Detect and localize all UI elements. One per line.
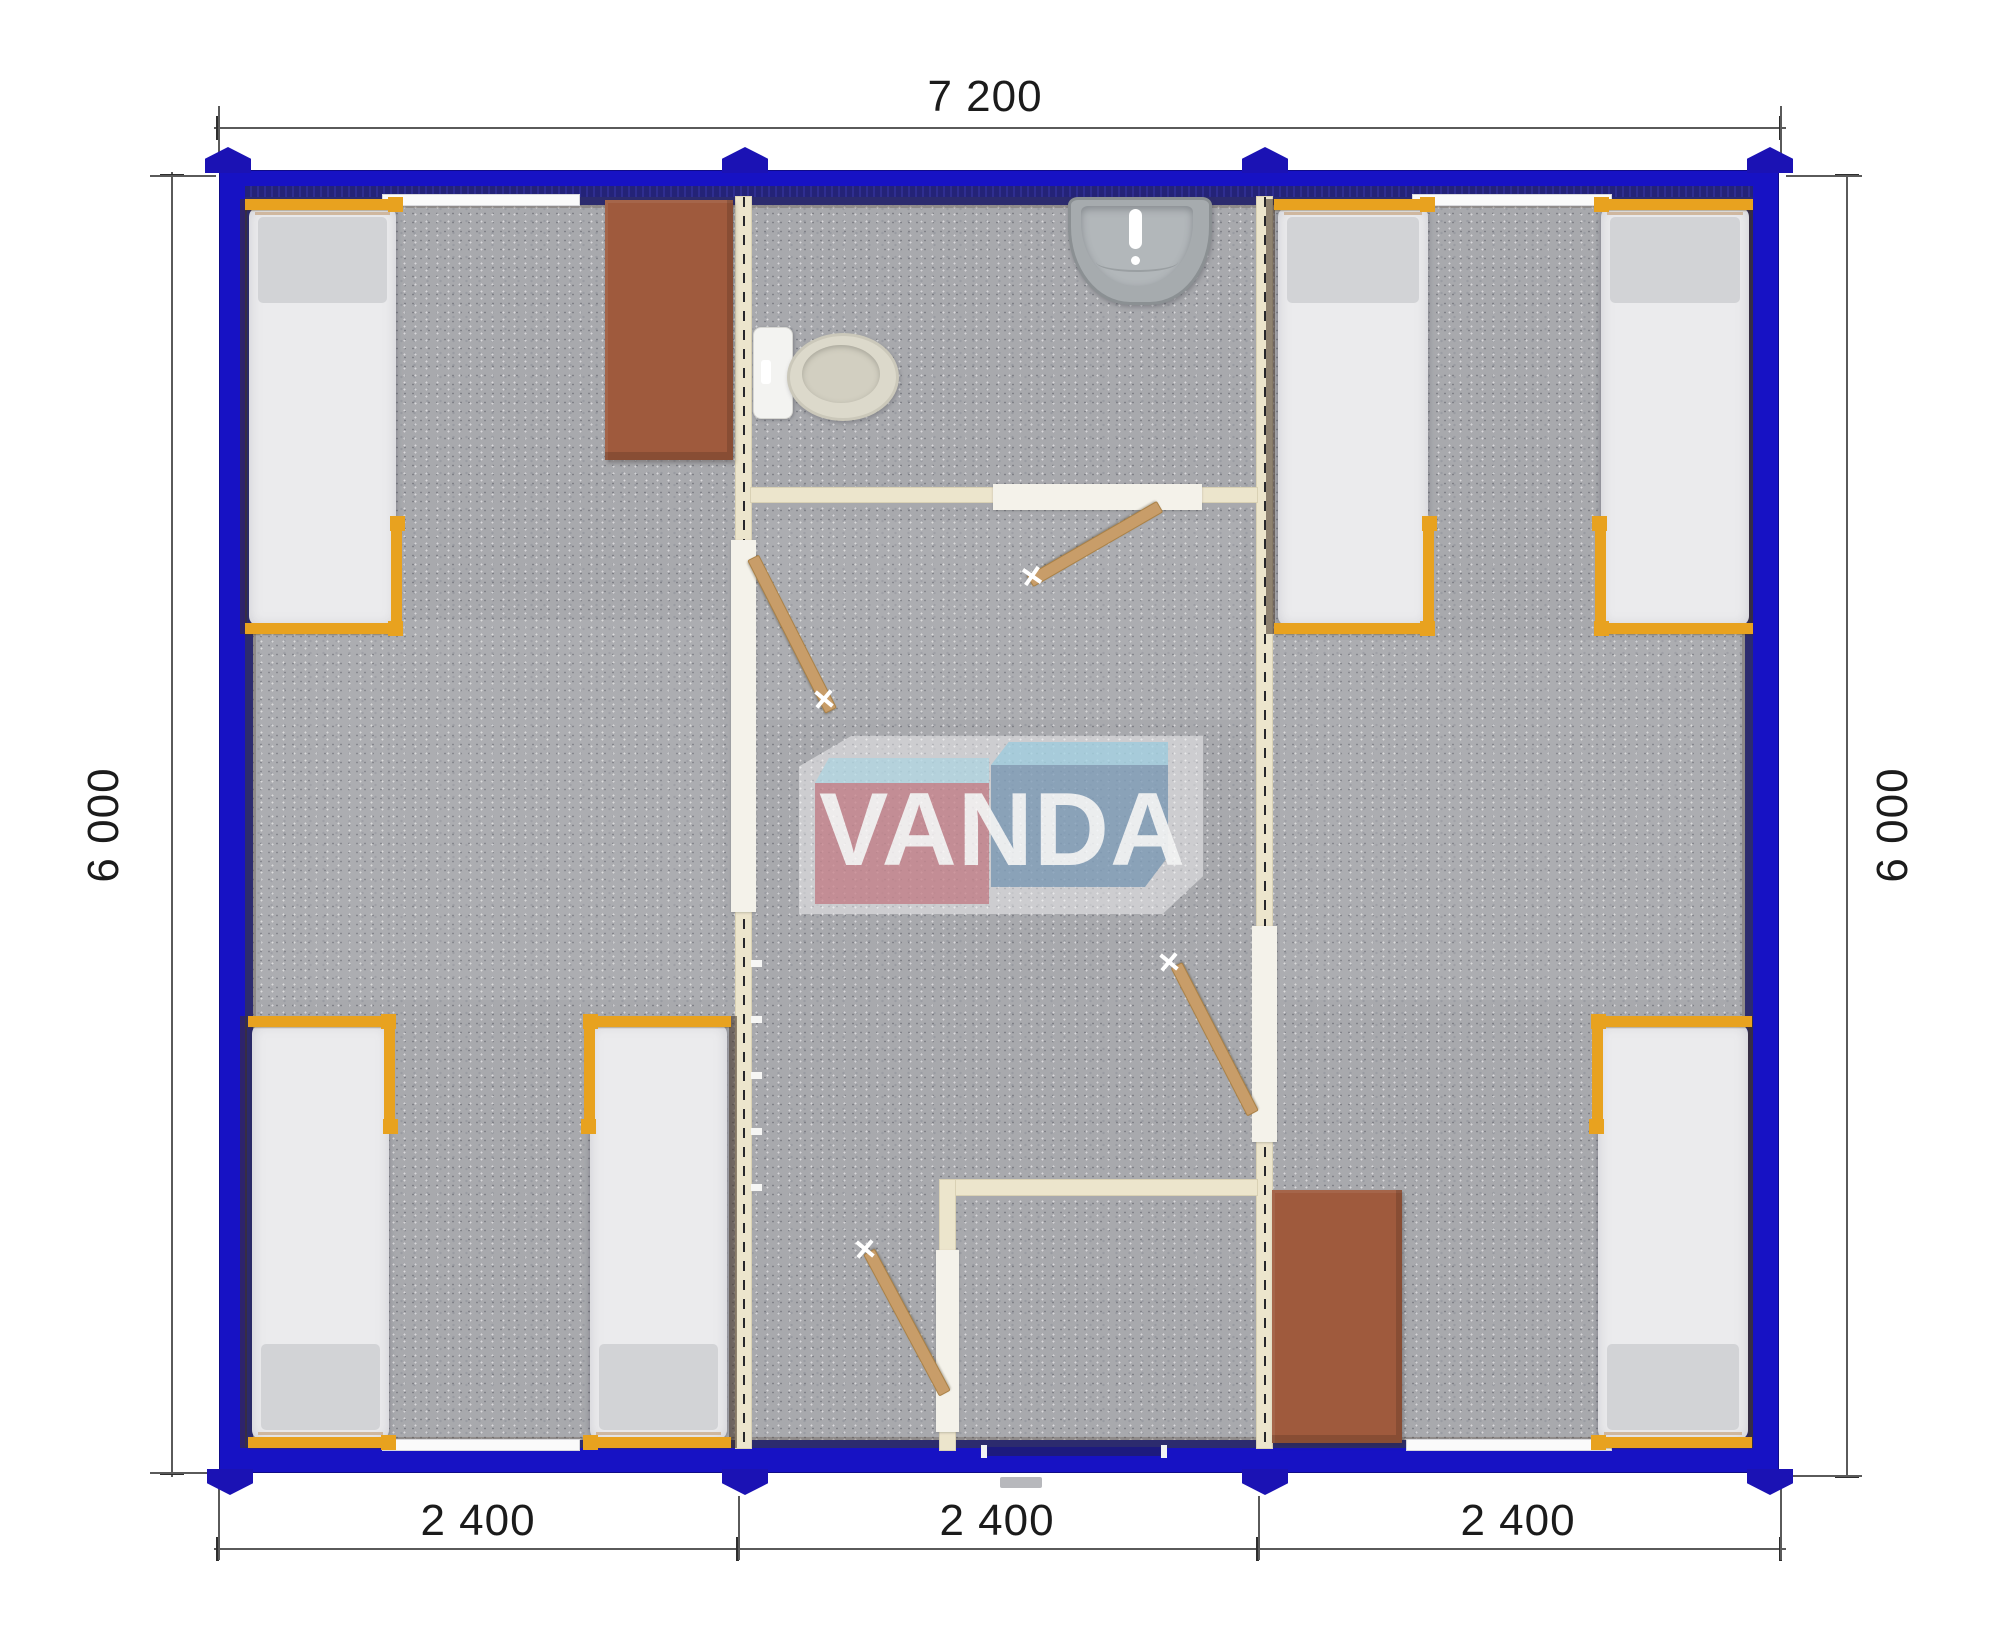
doorframe-vestibule <box>936 1250 959 1432</box>
bed-frame-bracket <box>583 1435 598 1450</box>
dim-ext <box>1786 1475 1862 1477</box>
bed-frame-bar <box>1597 623 1753 634</box>
wall-arrow-icon <box>1747 1469 1793 1495</box>
bed-frame-bracket <box>1592 516 1607 531</box>
floor-patch <box>260 620 720 1000</box>
bed-frame-bracket <box>1589 1119 1604 1134</box>
bed-headline <box>255 212 390 215</box>
logo-text: VANDA <box>819 778 1183 882</box>
bed-frame-bracket <box>390 516 405 531</box>
dim-ext <box>1780 1484 1782 1560</box>
entrance-door <box>985 1447 1163 1456</box>
bed-frame-bracket <box>388 197 403 212</box>
partition-stud <box>751 1072 762 1079</box>
pillow <box>1610 217 1740 303</box>
wall-arrow-icon <box>722 1469 768 1495</box>
partition-stud <box>751 1184 762 1191</box>
bed-side-rail <box>1595 525 1606 625</box>
entrance-step <box>1000 1477 1042 1488</box>
bed-side-rail <box>384 1025 395 1125</box>
partition-stud <box>751 1128 762 1135</box>
bed-frame-bar <box>586 1437 731 1448</box>
sink-faucet <box>1129 209 1142 249</box>
window-top-left <box>383 195 579 205</box>
entrance-door-frame <box>981 1445 987 1458</box>
bed-frame-bar <box>245 199 400 210</box>
bed-frame-bar <box>586 1016 731 1027</box>
bed-frame-bar <box>1274 623 1432 634</box>
window-bottom-left <box>383 1440 579 1450</box>
pillow <box>1607 1344 1739 1430</box>
bed-frame-bracket <box>1420 197 1435 212</box>
wall-arrow-icon <box>1747 147 1793 173</box>
bed-side-rail <box>391 525 402 625</box>
pillow <box>599 1344 718 1430</box>
bed-frame-bracket <box>1591 1435 1606 1450</box>
bed-headline <box>1607 212 1743 215</box>
dim-ext <box>150 175 216 177</box>
dim-bottom-line <box>214 1548 1786 1550</box>
dim-left-label: 6 000 <box>79 725 129 925</box>
wall-arrow-icon <box>207 1469 253 1495</box>
bed-frame-bar <box>1274 199 1432 210</box>
pillow <box>1287 217 1419 303</box>
wall-arrow-icon <box>205 147 251 173</box>
pillow <box>261 1344 380 1430</box>
bed-frame-bracket <box>1422 516 1437 531</box>
floor-patch <box>760 520 1240 720</box>
bed-shadow <box>240 1016 247 1448</box>
bed-frame-bar <box>1597 199 1753 210</box>
logo-blue-top-face <box>991 742 1168 765</box>
entrance-door-frame <box>1161 1445 1167 1458</box>
bed-frame-bar <box>1594 1016 1752 1027</box>
dim-ext <box>1258 1496 1260 1560</box>
bed-headline <box>1284 212 1422 215</box>
bed-headline <box>596 1432 721 1435</box>
bed <box>1597 199 1753 634</box>
bed-frame-bar <box>1594 1437 1752 1448</box>
dim-ext <box>738 1496 740 1560</box>
wall-arrow-icon <box>722 147 768 173</box>
dim-right-label: 6 000 <box>1868 725 1918 925</box>
bed-side-rail <box>1592 1025 1603 1125</box>
bed-headline <box>1604 1432 1742 1435</box>
bed-frame-bar <box>248 1437 393 1448</box>
wall-arrow-icon <box>1242 1469 1288 1495</box>
bed-frame-bracket <box>381 1435 396 1450</box>
bed <box>248 1016 393 1448</box>
window-bottom-right <box>1407 1440 1611 1450</box>
dim-right-line <box>1846 175 1848 1478</box>
bed-frame-bar <box>248 1016 393 1027</box>
dim-top-line <box>214 127 1786 129</box>
partition-stud <box>751 960 762 967</box>
bed-frame-bracket <box>581 1119 596 1134</box>
vanda-logo: VANDA <box>815 742 1187 905</box>
bed-frame-bracket <box>1594 197 1609 212</box>
floor-patch <box>1280 640 1740 1000</box>
dim-ext <box>150 1472 216 1474</box>
bed-side-rail <box>1423 525 1434 625</box>
bed <box>245 199 400 634</box>
pillow <box>258 217 387 303</box>
dim-left-line <box>171 172 173 1477</box>
floor-plan-page: 7 200 6 000 6 000 2 400 2 400 2 400 <box>0 0 2000 1648</box>
vestibule-top-wall <box>940 1180 1257 1195</box>
toilet-bowl-inner <box>802 345 880 403</box>
partition-stud <box>751 1016 762 1023</box>
bed <box>586 1016 731 1448</box>
bed-headline <box>258 1432 383 1435</box>
bed <box>1274 199 1432 634</box>
bed <box>1594 1016 1752 1448</box>
dim-ext <box>1786 175 1862 177</box>
window-top-right <box>1413 195 1611 205</box>
dim-ext <box>218 1484 220 1560</box>
table <box>1272 1190 1402 1443</box>
doorframe-bathroom <box>993 484 1202 510</box>
dim-bottom-label-3: 2 400 <box>1418 1496 1618 1546</box>
bed-frame-bar <box>245 623 400 634</box>
toilet-flush-button <box>761 360 771 384</box>
dim-bottom-label-1: 2 400 <box>378 1496 578 1546</box>
wall-arrow-icon <box>1242 147 1288 173</box>
table <box>605 200 733 460</box>
bed-side-rail <box>584 1025 595 1125</box>
bed-frame-bracket <box>383 1119 398 1134</box>
dim-bottom-label-2: 2 400 <box>897 1496 1097 1546</box>
dim-top-label: 7 200 <box>885 72 1085 122</box>
sink-drain <box>1131 256 1140 265</box>
doorframe-left-room <box>731 540 756 912</box>
